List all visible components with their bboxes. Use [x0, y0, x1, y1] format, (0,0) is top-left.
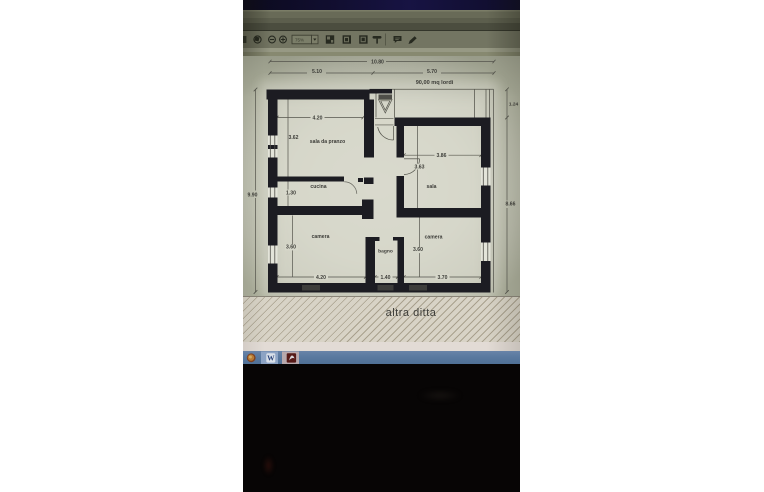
svg-text:W: W — [267, 353, 275, 362]
